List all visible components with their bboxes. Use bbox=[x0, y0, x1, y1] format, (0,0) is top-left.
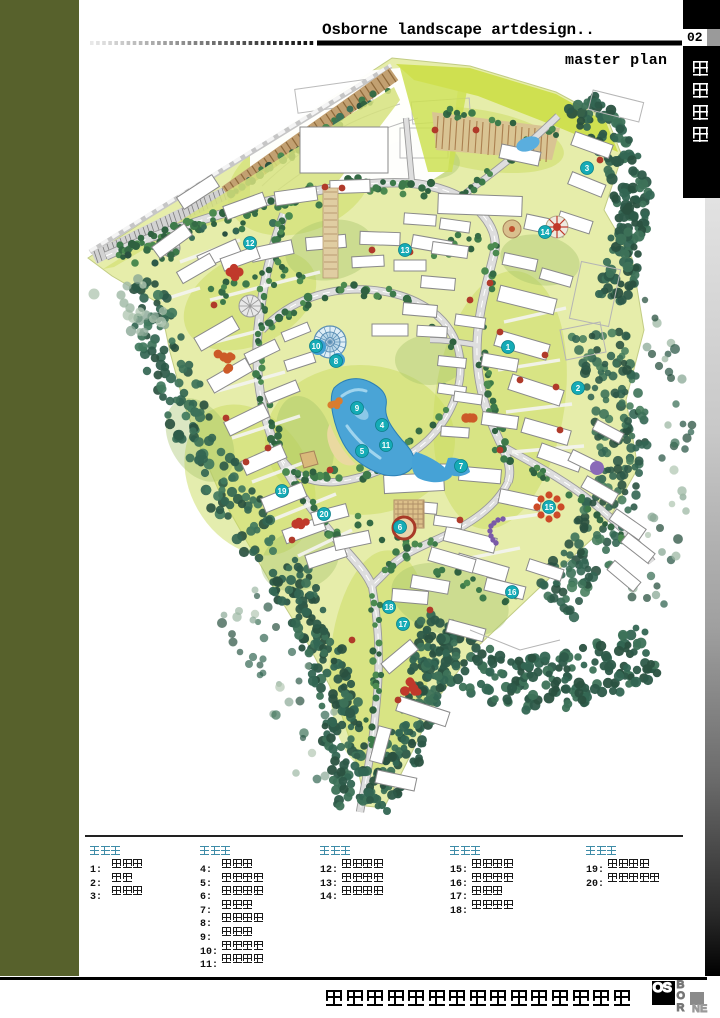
svg-text:18: 18 bbox=[385, 603, 394, 612]
svg-text:17: 17 bbox=[399, 620, 408, 629]
svg-text:19: 19 bbox=[278, 487, 287, 496]
svg-text:2: 2 bbox=[576, 384, 581, 393]
svg-text:7: 7 bbox=[459, 462, 464, 471]
svg-text:16: 16 bbox=[508, 588, 517, 597]
svg-text:14: 14 bbox=[541, 228, 550, 237]
svg-text:1: 1 bbox=[506, 343, 511, 352]
svg-text:10: 10 bbox=[312, 342, 321, 351]
svg-text:8: 8 bbox=[334, 357, 339, 366]
svg-text:12: 12 bbox=[246, 239, 255, 248]
svg-text:11: 11 bbox=[382, 441, 391, 450]
svg-text:3: 3 bbox=[585, 164, 590, 173]
svg-text:9: 9 bbox=[355, 404, 360, 413]
svg-text:20: 20 bbox=[320, 510, 329, 519]
svg-text:15: 15 bbox=[545, 503, 554, 512]
svg-text:4: 4 bbox=[380, 421, 385, 430]
svg-text:5: 5 bbox=[360, 447, 365, 456]
svg-text:13: 13 bbox=[401, 246, 410, 255]
svg-text:6: 6 bbox=[398, 523, 403, 532]
